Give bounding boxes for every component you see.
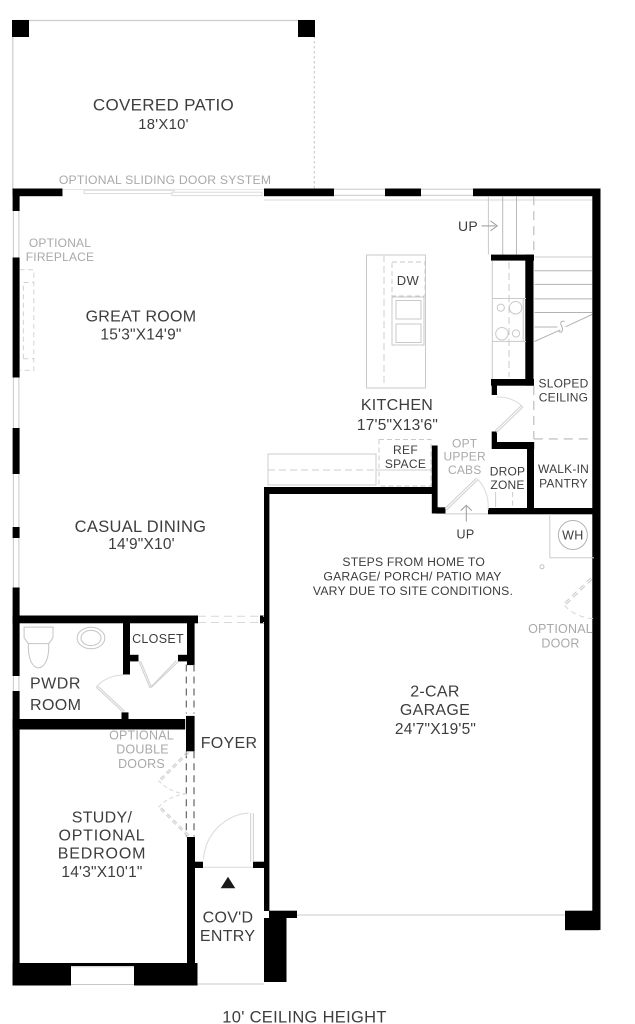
svg-text:14'9"X10': 14'9"X10' xyxy=(108,536,175,553)
svg-text:CASUAL DINING: CASUAL DINING xyxy=(75,518,207,536)
svg-text:CABS: CABS xyxy=(448,463,481,477)
svg-text:STUDY/: STUDY/ xyxy=(72,810,133,827)
svg-text:VARY DUE TO SITE CONDITIONS.: VARY DUE TO SITE CONDITIONS. xyxy=(313,584,513,598)
svg-text:14'3"X10'1": 14'3"X10'1" xyxy=(61,864,142,881)
svg-text:FOYER: FOYER xyxy=(201,735,258,752)
svg-text:18'X10': 18'X10' xyxy=(138,117,189,133)
svg-text:SPACE: SPACE xyxy=(385,457,426,471)
svg-text:STEPS FROM HOME TO: STEPS FROM HOME TO xyxy=(342,555,485,569)
svg-text:PWDR: PWDR xyxy=(30,676,81,693)
svg-text:OPTIONAL: OPTIONAL xyxy=(59,828,146,845)
svg-text:SLOPED: SLOPED xyxy=(539,377,589,391)
svg-text:17'5"X13'6": 17'5"X13'6" xyxy=(357,417,438,434)
svg-text:OPTIONAL: OPTIONAL xyxy=(109,729,174,743)
svg-text:10' CEILING HEIGHT: 10' CEILING HEIGHT xyxy=(222,1009,386,1024)
svg-text:OPTIONAL: OPTIONAL xyxy=(29,236,91,250)
svg-text:OPTIONAL SLIDING DOOR SYSTEM: OPTIONAL SLIDING DOOR SYSTEM xyxy=(59,173,271,187)
svg-text:24'7"X19'5": 24'7"X19'5" xyxy=(395,721,476,738)
svg-text:UP: UP xyxy=(457,528,475,542)
svg-text:COVERED PATIO: COVERED PATIO xyxy=(93,96,234,115)
svg-text:ZONE: ZONE xyxy=(490,478,524,492)
svg-text:OPTIONAL: OPTIONAL xyxy=(528,622,593,636)
svg-text:KITCHEN: KITCHEN xyxy=(361,397,433,414)
svg-text:CLOSET: CLOSET xyxy=(132,632,184,646)
svg-text:WH: WH xyxy=(562,529,583,543)
svg-text:UPPER: UPPER xyxy=(444,450,486,464)
svg-text:COV'D: COV'D xyxy=(203,910,254,927)
svg-text:ENTRY: ENTRY xyxy=(200,928,255,945)
svg-text:ROOM: ROOM xyxy=(30,697,81,714)
svg-text:REF: REF xyxy=(393,443,418,457)
svg-text:GARAGE/ PORCH/ PATIO MAY: GARAGE/ PORCH/ PATIO MAY xyxy=(323,570,501,584)
svg-text:BEDROOM: BEDROOM xyxy=(58,846,147,863)
svg-text:DOUBLE: DOUBLE xyxy=(116,743,169,757)
svg-text:FIREPLACE: FIREPLACE xyxy=(26,250,95,264)
svg-text:15'3"X14'9": 15'3"X14'9" xyxy=(100,327,181,344)
svg-text:PANTRY: PANTRY xyxy=(539,477,588,491)
svg-text:GARAGE: GARAGE xyxy=(400,702,470,719)
svg-text:WALK-IN: WALK-IN xyxy=(538,462,589,476)
svg-text:UP: UP xyxy=(458,218,478,234)
svg-text:GREAT ROOM: GREAT ROOM xyxy=(86,309,197,326)
svg-text:DOOR: DOOR xyxy=(541,637,579,651)
svg-text:DW: DW xyxy=(397,273,420,288)
svg-text:DROP: DROP xyxy=(490,465,525,479)
svg-text:DOORS: DOORS xyxy=(118,757,165,771)
svg-text:2-CAR: 2-CAR xyxy=(410,684,460,701)
svg-text:OPT: OPT xyxy=(452,437,478,451)
svg-text:CEILING: CEILING xyxy=(539,391,588,405)
